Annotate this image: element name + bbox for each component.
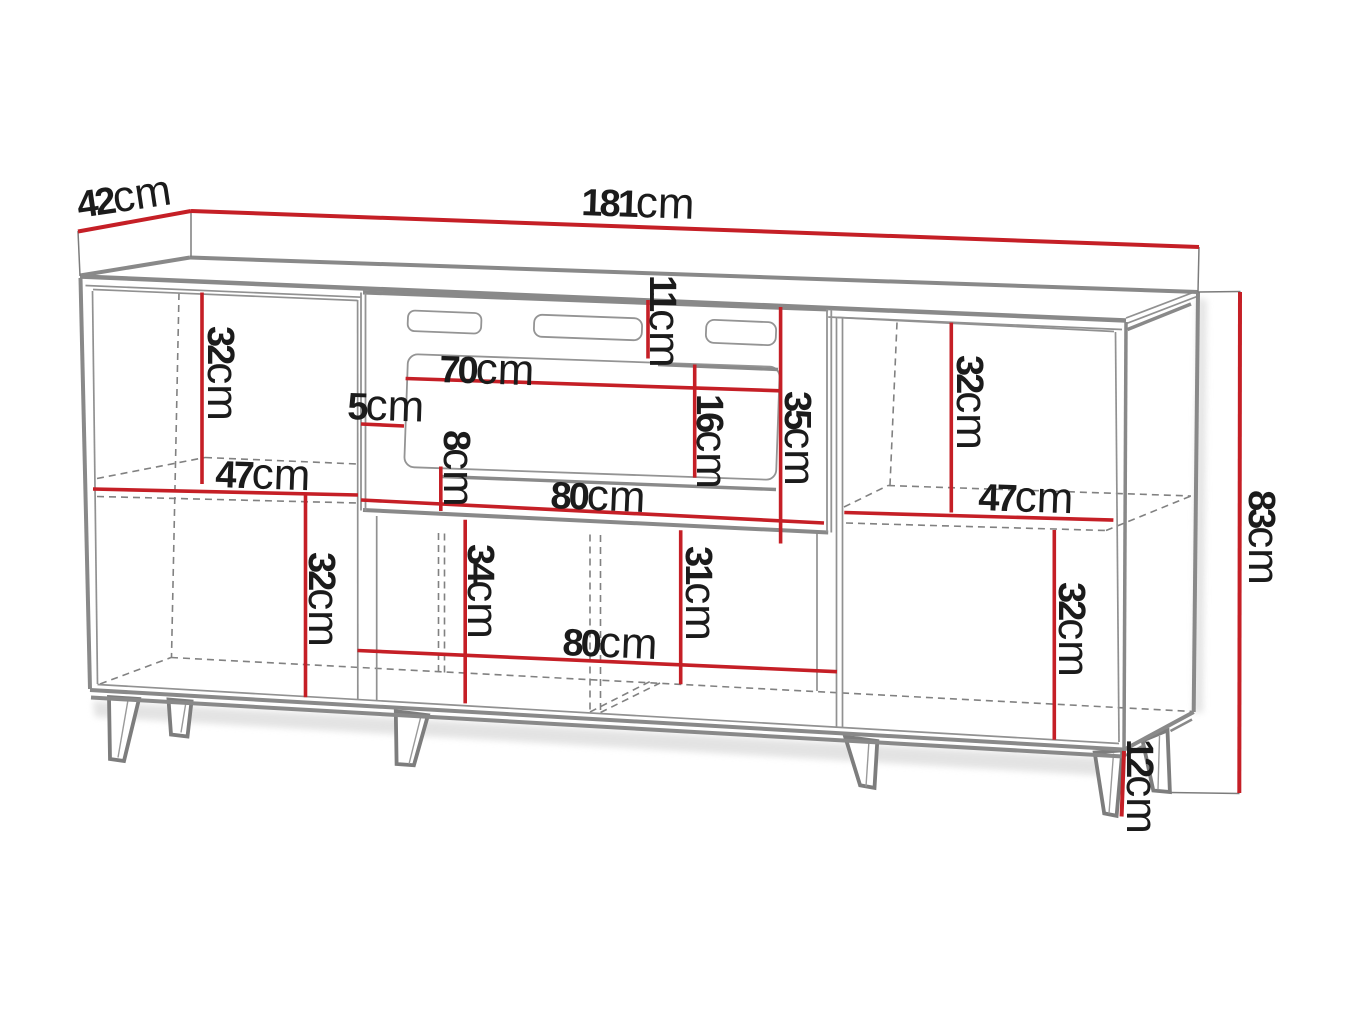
svg-text:11cm: 11cm xyxy=(640,275,689,368)
svg-text:70cm: 70cm xyxy=(439,343,536,395)
svg-text:80cm: 80cm xyxy=(550,469,647,522)
svg-text:34cm: 34cm xyxy=(458,544,507,639)
svg-text:32cm: 32cm xyxy=(198,326,247,421)
svg-text:16cm: 16cm xyxy=(687,394,736,489)
svg-text:8cm: 8cm xyxy=(434,430,483,507)
svg-text:31cm: 31cm xyxy=(676,546,725,641)
svg-text:32cm: 32cm xyxy=(1049,582,1098,677)
svg-text:5cm: 5cm xyxy=(347,380,425,432)
svg-text:181cm: 181cm xyxy=(581,176,696,229)
svg-text:47cm: 47cm xyxy=(215,448,312,500)
svg-text:32cm: 32cm xyxy=(299,552,348,647)
svg-text:12cm: 12cm xyxy=(1117,739,1166,834)
svg-text:80cm: 80cm xyxy=(562,616,659,669)
svg-text:83cm: 83cm xyxy=(1239,490,1288,585)
svg-text:32cm: 32cm xyxy=(947,355,996,450)
svg-text:35cm: 35cm xyxy=(775,391,824,486)
svg-text:47cm: 47cm xyxy=(978,471,1075,523)
